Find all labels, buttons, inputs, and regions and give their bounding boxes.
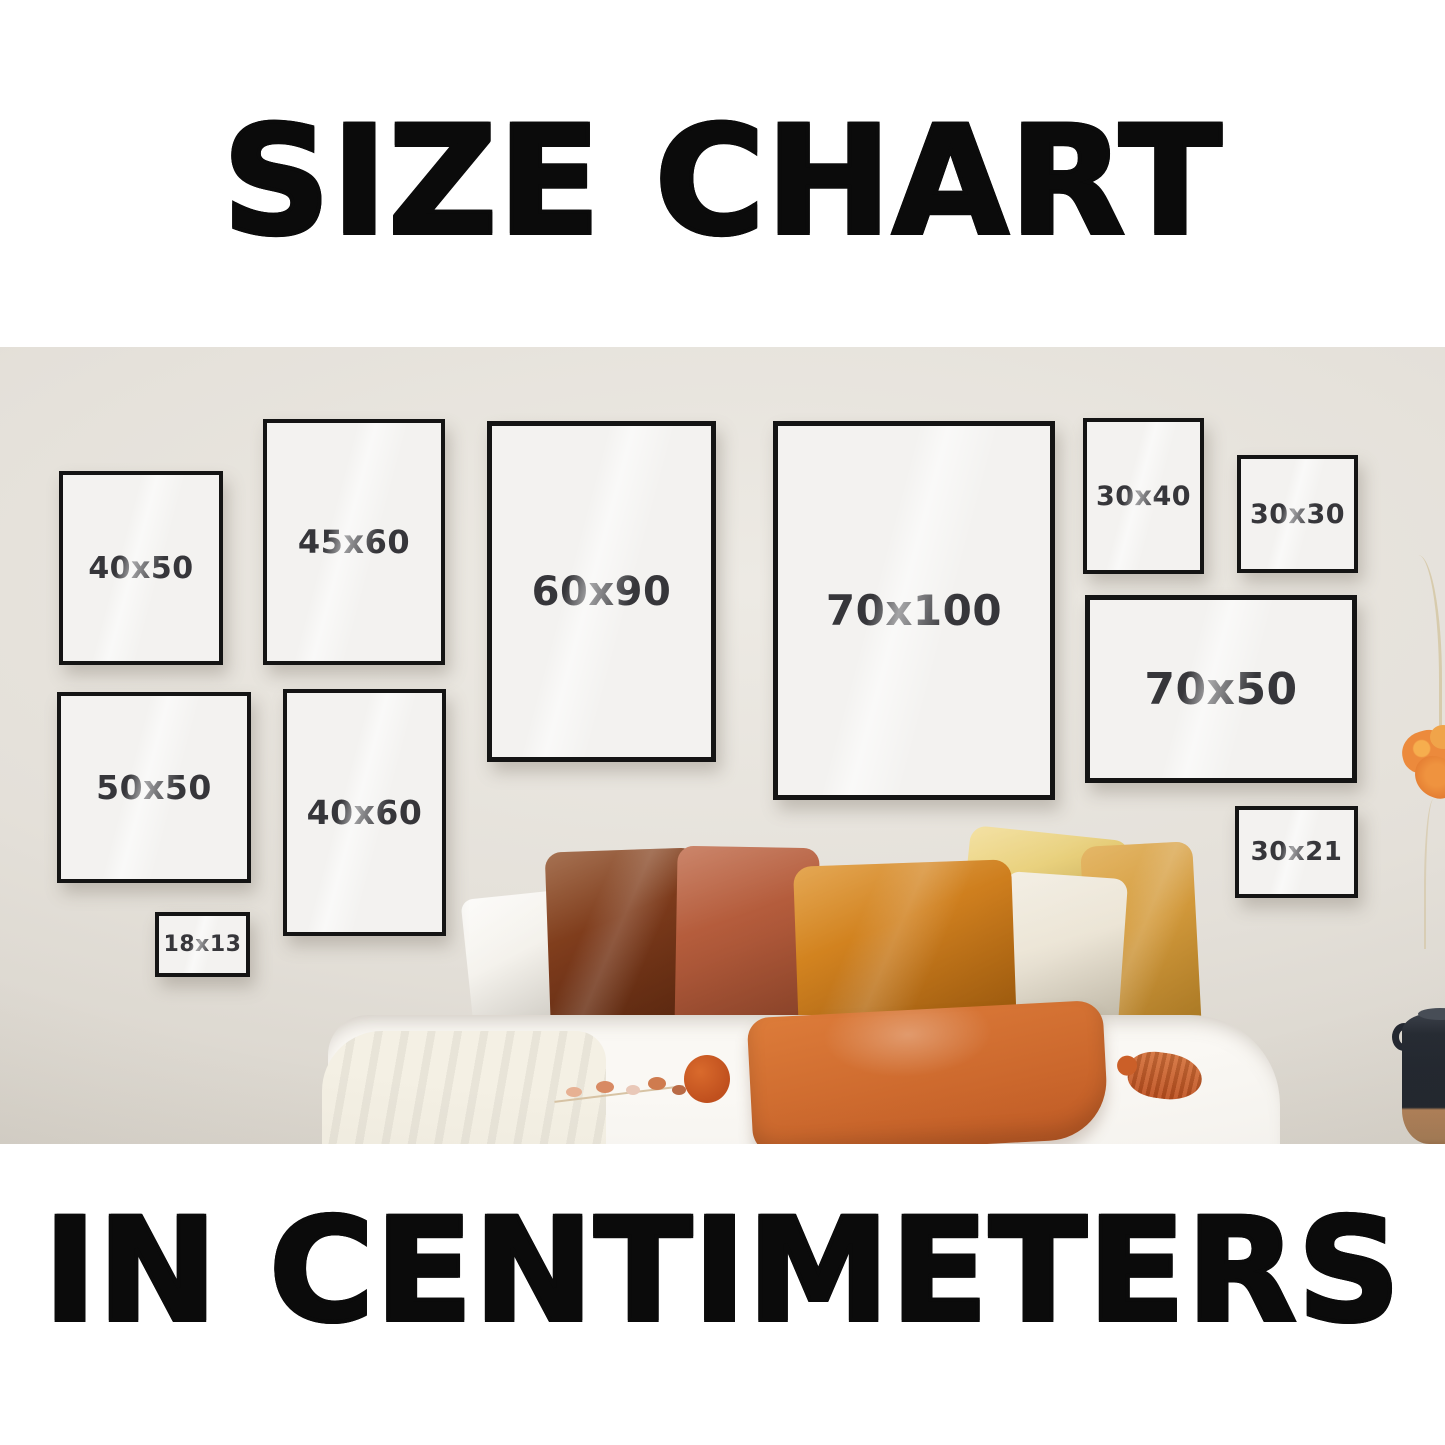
bedroom-wall-photo: 40x50 45x60 60x90 70x100 30x40 30x30 50x… (0, 347, 1445, 1144)
unit-subtitle: IN CENTIMETERS (43, 1187, 1401, 1354)
dried-stem (1408, 555, 1442, 733)
frame-70x100: 70x100 (773, 421, 1055, 800)
frame-size-label: 30x21 (1251, 837, 1343, 867)
sprig-bud (626, 1085, 640, 1095)
frame-size-label: 45x60 (298, 523, 410, 561)
frame-70x50: 70x50 (1085, 595, 1357, 783)
frame-size-label: 70x100 (826, 586, 1002, 635)
sprig-bud (672, 1085, 686, 1095)
frame-30x21: 30x21 (1235, 806, 1358, 898)
dried-stem (1424, 799, 1440, 949)
dark-vase (1392, 1011, 1445, 1144)
header: SIZE CHART (0, 0, 1445, 347)
frame-18x13: 18x13 (155, 912, 250, 977)
frame-40x50: 40x50 (59, 471, 223, 665)
size-chart-graphic: SIZE CHART 40x50 45x60 60x90 70x100 30x4… (0, 0, 1445, 1445)
page-title: SIZE CHART (222, 95, 1222, 269)
frame-30x30: 30x30 (1237, 455, 1358, 573)
frame-size-label: 60x90 (532, 569, 672, 615)
frame-size-label: 30x30 (1250, 499, 1345, 530)
frame-45x60: 45x60 (263, 419, 445, 665)
frame-40x60: 40x60 (283, 689, 446, 936)
frame-60x90: 60x90 (487, 421, 716, 762)
frame-size-label: 18x13 (164, 932, 242, 957)
sprig-bud (596, 1081, 614, 1093)
frame-size-label: 40x50 (88, 551, 193, 586)
footer: IN CENTIMETERS (0, 1144, 1445, 1445)
sprig-bud (648, 1077, 666, 1090)
orange-tassel-pillow (747, 1000, 1110, 1144)
frame-size-label: 40x60 (307, 793, 423, 832)
sprig-bud (566, 1087, 582, 1097)
frame-size-label: 50x50 (96, 768, 212, 807)
frame-size-label: 30x40 (1096, 481, 1191, 512)
dried-flower-sprig (548, 1073, 698, 1115)
orange-flower (1402, 725, 1445, 799)
frame-30x40: 30x40 (1083, 418, 1204, 574)
frame-50x50: 50x50 (57, 692, 251, 883)
frame-size-label: 70x50 (1144, 664, 1297, 715)
vase-body (1402, 1013, 1445, 1144)
